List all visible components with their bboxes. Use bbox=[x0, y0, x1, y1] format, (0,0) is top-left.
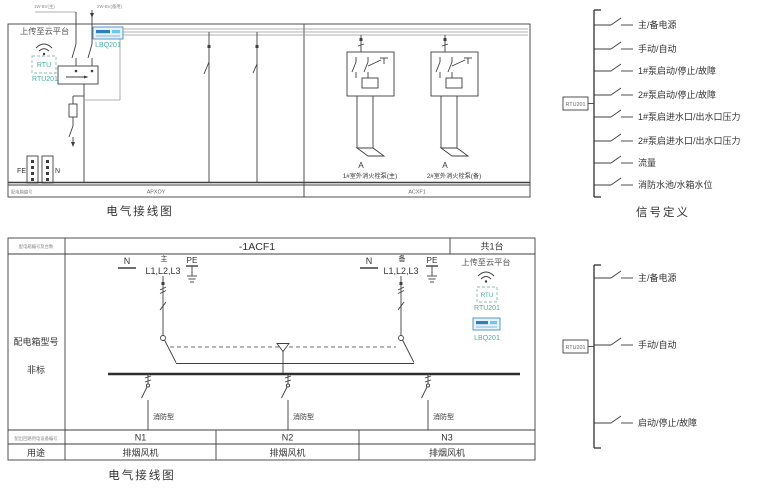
model-row-value: 非标 bbox=[27, 364, 45, 375]
rtu-source-label-2: RTU201 bbox=[566, 345, 586, 351]
signal-branch bbox=[594, 18, 633, 185]
rtu-source-label: RTU201 bbox=[566, 102, 586, 108]
pump2-caption: 2#室外消火栓泵(备) bbox=[427, 172, 481, 180]
model-row-label: 配电箱型号 bbox=[13, 336, 58, 347]
signal-item-label: 手动/自动 bbox=[638, 339, 677, 350]
feeder-3-type: 消防型 bbox=[433, 412, 454, 421]
cloud-title: 上传至云平台 bbox=[20, 26, 69, 36]
signal-bracket-2 bbox=[594, 265, 601, 448]
top-panel-border bbox=[8, 24, 530, 197]
supply2-role-label: 备 bbox=[399, 254, 406, 263]
usage-row-label: 用途 bbox=[27, 447, 45, 458]
n-terminal-label: N bbox=[55, 168, 60, 175]
circuit-row-label: 配出回路用电设备编号 bbox=[15, 435, 58, 442]
signal-item-label: 2#泵启动/停止/故障 bbox=[638, 89, 716, 100]
supply1-role-label: 主 bbox=[161, 254, 168, 263]
signal-branch-2 bbox=[594, 271, 633, 423]
mid-feeder-2 bbox=[253, 32, 259, 183]
supply2-pe-label: PE bbox=[427, 256, 438, 265]
fe-terminal-label: FE bbox=[17, 168, 26, 175]
circuit-cell: N2 bbox=[282, 433, 294, 443]
wifi-icon bbox=[36, 44, 52, 55]
signal-item-label: 主/备电源 bbox=[638, 272, 677, 283]
supply1-phases-label: L1,L2,L3 bbox=[145, 266, 180, 276]
signal-item-label: 1#泵启进水口/出水口压力 bbox=[638, 111, 741, 122]
pump1-caption: 1#室外消火栓泵(主) bbox=[343, 172, 397, 180]
top-wiring-diagram: 1W-BV(主) 2W-BV(备用) 上传至云平台 RTU RTU201 bbox=[0, 0, 545, 228]
incoming-right-label: 2W-BV(备用) bbox=[97, 3, 123, 10]
lbq-id-label-2: LBQ201 bbox=[474, 335, 500, 342]
pump-starter-1 bbox=[347, 35, 394, 156]
top-diagram-caption: 电气接线图 bbox=[106, 204, 174, 218]
signal-item-label: 启动/停止/故障 bbox=[638, 417, 697, 428]
supply2-n-label: N bbox=[366, 256, 373, 266]
rtu-id-label-2: RTU201 bbox=[474, 305, 500, 312]
rtu-id-label: RTU201 bbox=[32, 76, 58, 83]
supply2-phases-label: L1,L2,L3 bbox=[383, 266, 418, 276]
strip-code-right: ACXF1 bbox=[408, 190, 425, 196]
feeder-2-type: 消防型 bbox=[293, 412, 314, 421]
changeover-interlock bbox=[170, 344, 414, 375]
panel-count: 共1台 bbox=[480, 241, 503, 252]
page: 1W-BV(主) 2W-BV(备用) 上传至云平台 RTU RTU201 bbox=[0, 0, 761, 488]
rtu-box-label: RTU bbox=[37, 62, 51, 69]
signal-list-caption: 信号定义 bbox=[636, 205, 690, 219]
supply1-pe-label: PE bbox=[187, 256, 198, 265]
lbq-id-label: LBQ201 bbox=[95, 42, 121, 49]
feeder-3-symbol bbox=[422, 374, 432, 430]
rtu-box-label-2: RTU bbox=[481, 292, 494, 299]
bottom-strip bbox=[8, 183, 530, 186]
incoming-left-label: 1W-BV(主) bbox=[34, 3, 55, 9]
bottom-diagram-caption: 电气接线图 bbox=[108, 468, 176, 482]
pump2-phase-label: A bbox=[442, 161, 448, 170]
supply1-n-label: N bbox=[124, 256, 131, 266]
incoming-lines bbox=[35, 10, 94, 66]
table-grid bbox=[8, 238, 535, 460]
ats-box bbox=[58, 66, 98, 84]
supply1-symbols bbox=[118, 266, 198, 363]
signal-item-label: 手动/自动 bbox=[638, 43, 677, 54]
lbq-device-2 bbox=[473, 318, 500, 330]
header-left-label: 配电箱编号及台数 bbox=[19, 243, 54, 250]
cloud-title-2: 上传至云平台 bbox=[461, 257, 510, 267]
signal-bracket bbox=[594, 10, 601, 197]
signal-list-bottom: RTU201 主/备电源 手动/自动 启动/停止/故障 bbox=[545, 230, 761, 488]
signal-item-label: 1#泵启动/停止/故障 bbox=[638, 65, 716, 76]
feeder-1-symbol bbox=[142, 374, 152, 430]
signal-item-label: 主/备电源 bbox=[638, 19, 677, 30]
supply2-symbols bbox=[360, 266, 438, 363]
signal-item-label: 消防水池/水箱水位 bbox=[638, 179, 713, 190]
usage-cell: 排烟风机 bbox=[269, 447, 305, 458]
fuse-branch bbox=[69, 96, 84, 147]
feeder-1-type: 消防型 bbox=[153, 412, 174, 421]
circuit-cell: N1 bbox=[135, 433, 147, 443]
bottom-wiring-diagram: 配电箱编号及台数 -1ACF1 共1台 配电箱型号 非标 配出回路用电设备编号 … bbox=[0, 230, 545, 488]
lbq-device bbox=[93, 27, 123, 39]
feeder-2-symbol bbox=[282, 374, 292, 430]
bottom-panel-border bbox=[8, 238, 535, 460]
pump1-phase-label: A bbox=[358, 161, 364, 170]
strip-code-left: APXOY bbox=[147, 190, 166, 196]
mid-feeder-1 bbox=[204, 32, 211, 183]
wifi-icon-2 bbox=[478, 272, 494, 283]
usage-cell: 排烟风机 bbox=[122, 447, 158, 458]
signal-item-label: 2#泵启进水口/出水口压力 bbox=[638, 135, 741, 146]
signal-list-top: RTU201 主/备电源 手动/自动 1#泵启动/停止/故障 2#泵启动/停止/… bbox=[545, 0, 761, 228]
usage-cell: 排烟风机 bbox=[429, 447, 465, 458]
pump-starter-2 bbox=[431, 35, 478, 156]
circuit-cell: N3 bbox=[441, 433, 453, 443]
panel-code: -1ACF1 bbox=[239, 241, 275, 253]
signal-item-label: 流量 bbox=[638, 157, 656, 168]
terminal-blocks bbox=[27, 156, 53, 183]
signal-bus-lines bbox=[84, 29, 528, 100]
strip-left-label: 配电箱编号 bbox=[11, 189, 32, 196]
